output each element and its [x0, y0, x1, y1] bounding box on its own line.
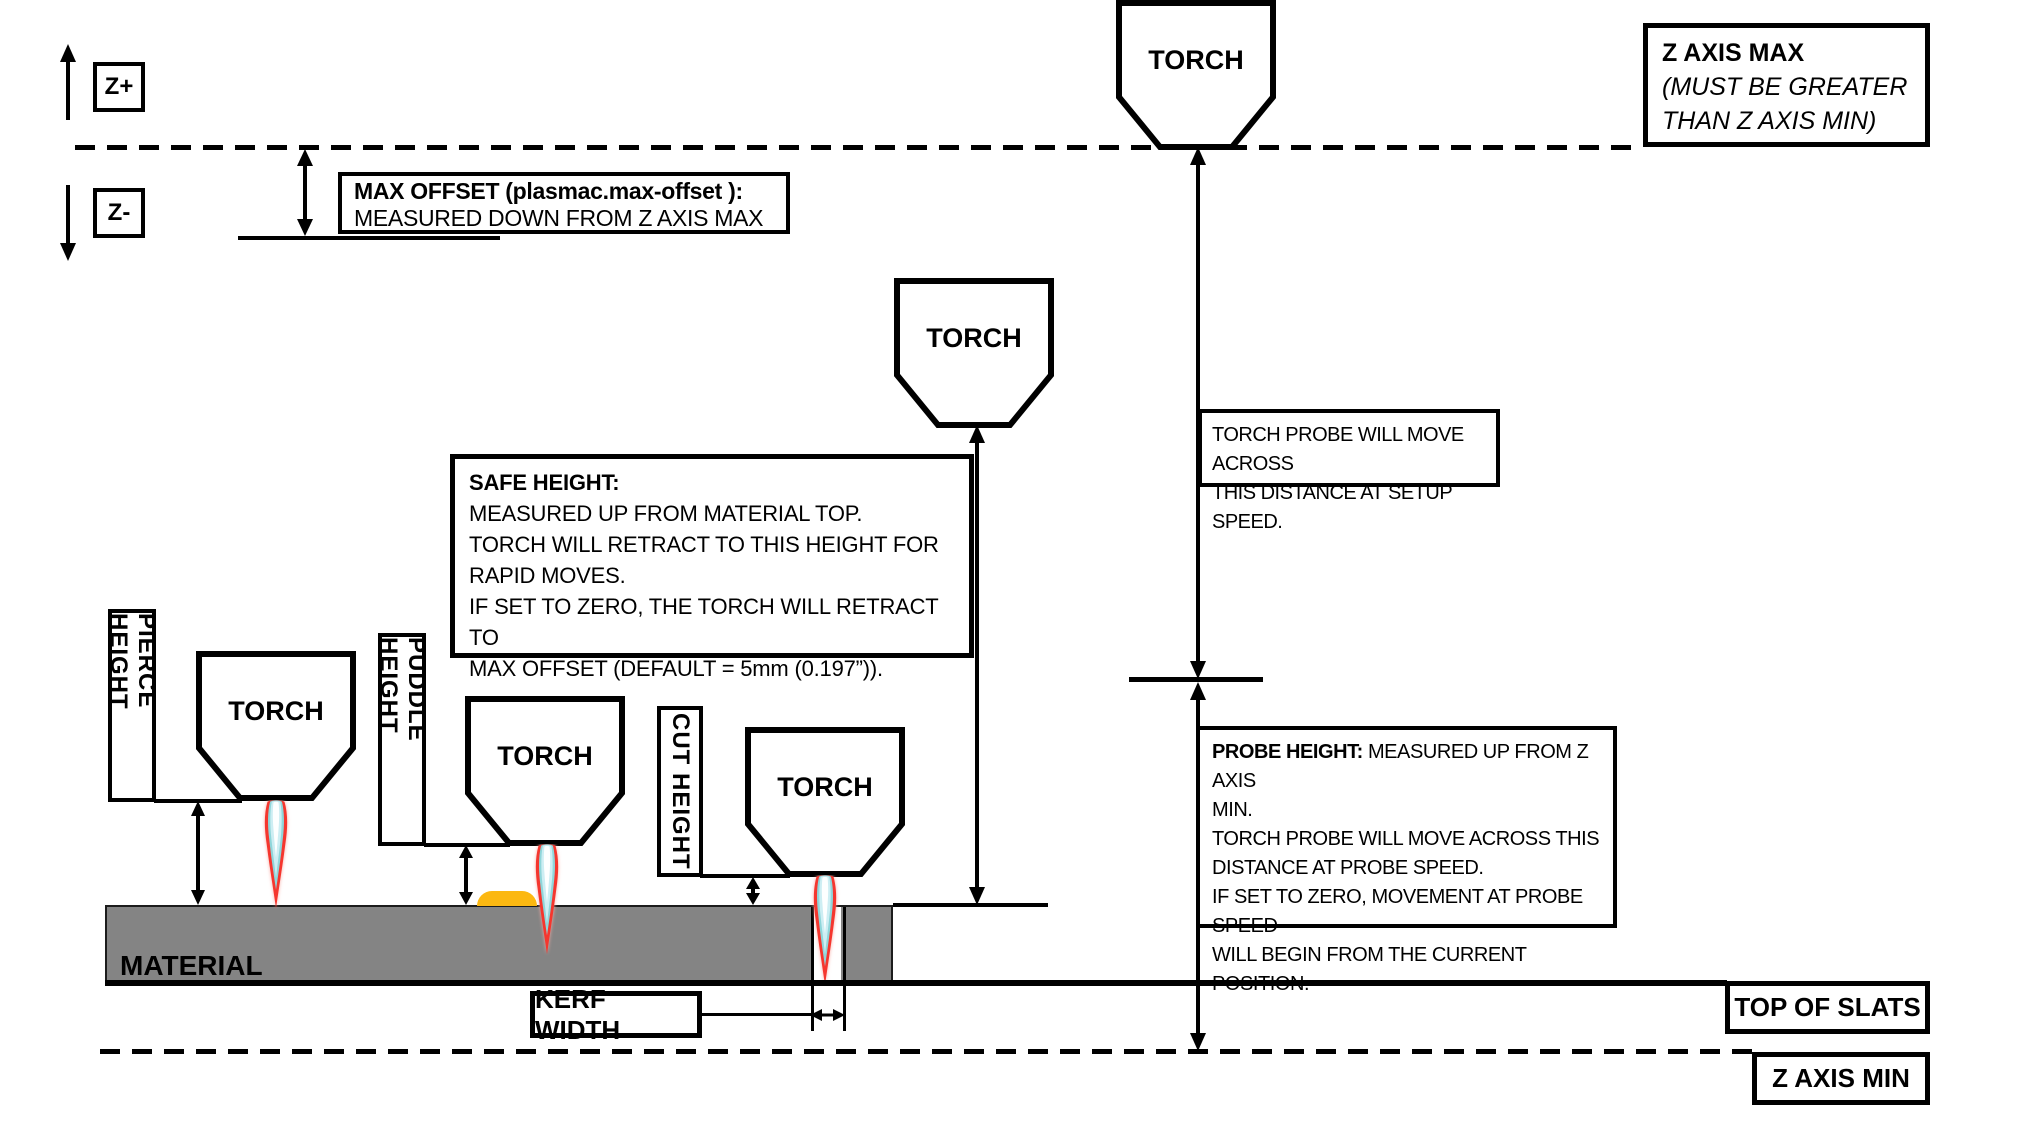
safe-height-arrow-icon: [968, 425, 986, 905]
safe-height-line4: RAPID MOVES.: [469, 560, 969, 591]
probe-height-line4: DISTANCE AT PROBE SPEED.: [1212, 854, 1613, 883]
z-plus-label: Z+: [105, 73, 134, 101]
top-of-slats-label: TOP OF SLATS: [1734, 992, 1920, 1023]
torch-pierce-label: TORCH: [199, 696, 353, 727]
plasmac-height-diagram: Z+ Z- MAX OFFSET (plasmac.max-offset ): …: [0, 0, 2038, 1145]
probe-height-line6: WILL BEGIN FROM THE CURRENT POSITION.: [1212, 941, 1613, 999]
z-plus-arrow-icon: [59, 44, 77, 120]
puddle-height-label-box: PUDDLE HEIGHT: [378, 633, 426, 846]
puddle-height-arrow-icon: [457, 845, 475, 905]
safe-height-title: SAFE HEIGHT:: [469, 467, 969, 498]
top-of-slats-line: [105, 980, 1727, 986]
z-axis-max-title: Z AXIS MAX: [1662, 36, 1925, 70]
torch-probe-box: TORCH PROBE WILL MOVE ACROSS THIS DISTAN…: [1198, 409, 1500, 487]
kerf-width-arrow-icon: [810, 1007, 845, 1023]
pierce-height-arrow-icon: [189, 801, 207, 905]
z-minus-box: Z-: [93, 188, 145, 238]
z-axis-max-note-line2: THAN Z AXIS MIN): [1662, 104, 1925, 138]
probe-height-line1: PROBE HEIGHT: MEASURED UP FROM Z AXIS: [1212, 738, 1613, 796]
kerf-pointer-line: [702, 1013, 814, 1016]
safe-height-line6: MAX OFFSET (DEFAULT = 5mm (0.197”)).: [469, 653, 969, 684]
max-offset-line2: MEASURED DOWN FROM Z AXIS MAX: [354, 205, 786, 232]
top-of-slats-box: TOP OF SLATS: [1725, 981, 1930, 1034]
kerf-width-label: KERF WIDTH: [535, 984, 697, 1046]
safe-height-line2: MEASURED UP FROM MATERIAL TOP.: [469, 498, 969, 529]
torch-safe-label: TORCH: [897, 323, 1051, 354]
z-axis-min-label: Z AXIS MIN: [1772, 1063, 1910, 1094]
material-label: MATERIAL: [120, 950, 263, 982]
cut-height-label-box: CUT HEIGHT: [657, 706, 703, 877]
probe-height-title: PROBE HEIGHT:: [1212, 741, 1363, 763]
probe-height-line3: TORCH PROBE WILL MOVE ACROSS THIS: [1212, 825, 1613, 854]
z-minus-arrow-icon: [59, 185, 77, 261]
pierce-height-label-box: PIERCE HEIGHT: [108, 609, 156, 802]
z-plus-box: Z+: [93, 62, 145, 112]
z-axis-min-box: Z AXIS MIN: [1752, 1052, 1930, 1105]
safe-height-line3: TORCH WILL RETRACT TO THIS HEIGHT FOR: [469, 529, 969, 560]
kerf-width-box: KERF WIDTH: [530, 991, 702, 1038]
torch-probe-line1: TORCH PROBE WILL MOVE ACROSS: [1212, 421, 1496, 479]
safe-height-line5: IF SET TO ZERO, THE TORCH WILL RETRACT T…: [469, 591, 969, 653]
torch-cut-label: TORCH: [748, 772, 902, 803]
probe-height-line5: IF SET TO ZERO, MOVEMENT AT PROBE SPEED: [1212, 883, 1613, 941]
z-axis-max-note-line1: (MUST BE GREATER: [1662, 70, 1925, 104]
z-minus-label: Z-: [108, 199, 131, 227]
torch-top-label: TORCH: [1119, 45, 1273, 76]
cut-flame-icon: [808, 875, 842, 987]
puddle-height-label: PUDDLE HEIGHT: [374, 637, 430, 842]
cut-height-label: CUT HEIGHT: [666, 713, 694, 870]
max-offset-box: MAX OFFSET (plasmac.max-offset ): MEASUR…: [338, 172, 790, 234]
probe-height-line2: MIN.: [1212, 796, 1613, 825]
max-offset-level-line: [238, 236, 500, 240]
torch-puddle-label: TORCH: [468, 741, 622, 772]
max-offset-arrow-icon: [296, 149, 314, 236]
cut-height-arrow-icon: [744, 877, 762, 905]
probe-height-box: PROBE HEIGHT: MEASURED UP FROM Z AXIS MI…: [1196, 726, 1617, 928]
z-axis-min-dashed-line: [100, 1049, 1752, 1054]
molten-puddle: [477, 891, 537, 906]
safe-height-box: SAFE HEIGHT: MEASURED UP FROM MATERIAL T…: [450, 454, 974, 658]
max-offset-line1: MAX OFFSET (plasmac.max-offset ):: [354, 178, 786, 205]
pierce-height-label: PIERCE HEIGHT: [104, 613, 160, 798]
puddle-flame-icon: [530, 844, 564, 956]
torch-probe-line2: THIS DISTANCE AT SETUP SPEED.: [1212, 479, 1496, 537]
z-axis-max-box: Z AXIS MAX (MUST BE GREATER THAN Z AXIS …: [1643, 23, 1930, 147]
pierce-flame-icon: [259, 800, 293, 910]
